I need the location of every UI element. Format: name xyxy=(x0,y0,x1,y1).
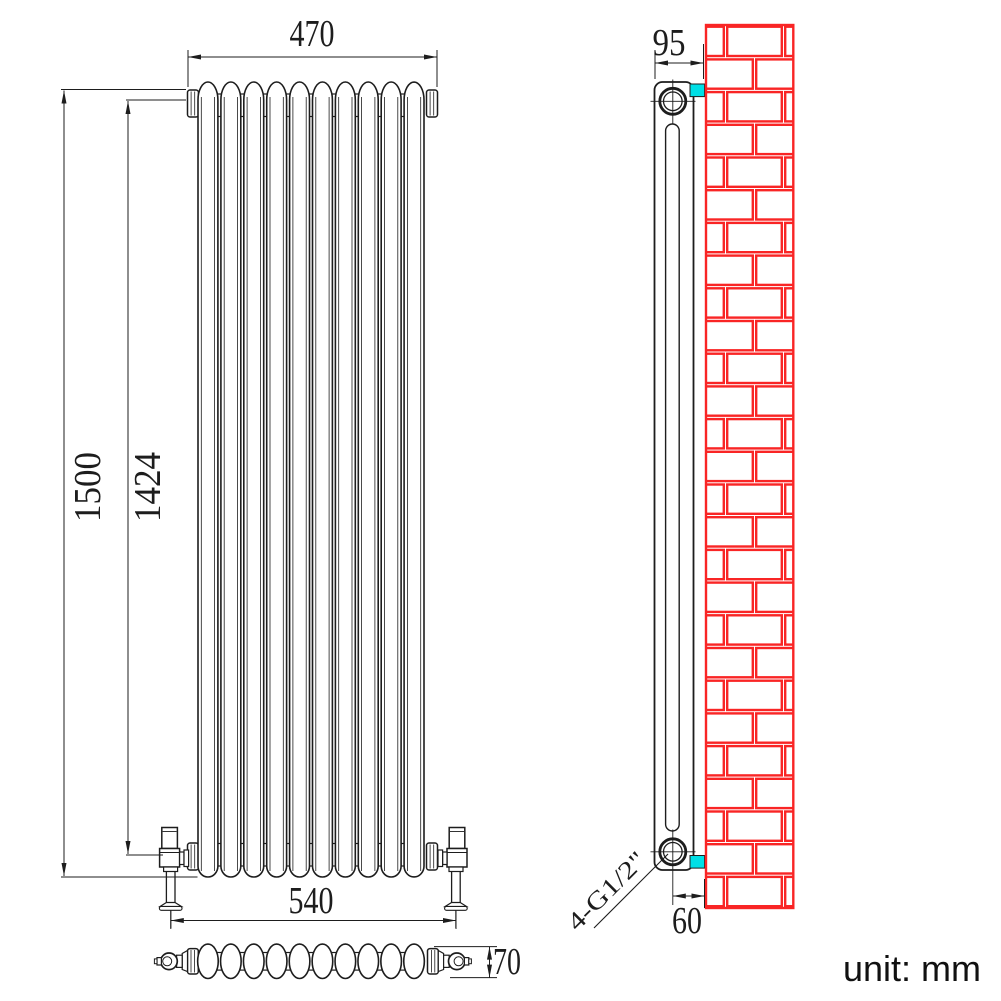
dim-tapping-height-label: 1424 xyxy=(127,452,169,522)
dim-side-width-label: 95 xyxy=(653,22,686,64)
drawing-canvas: 470 1500 1424 540 95 60 70 4-G1/2" unit:… xyxy=(0,0,1001,1001)
dim-overall-height-label: 1500 xyxy=(67,452,109,522)
dim-wall-distance-label: 60 xyxy=(672,900,702,942)
connection-size-label: 4-G1/2" xyxy=(562,846,652,936)
brick-wall xyxy=(669,25,840,908)
radiator-technical-drawing: 470 1500 1424 540 95 60 70 4-G1/2" unit:… xyxy=(0,0,1001,1001)
dim-front-width-label: 470 xyxy=(290,13,335,55)
dim-depth-label: 70 xyxy=(493,941,521,983)
dim-pipe-centres-label: 540 xyxy=(289,880,334,922)
radiator-side-view xyxy=(651,80,705,906)
radiator-top-view xyxy=(154,944,471,978)
unit-label: unit: mm xyxy=(843,948,981,989)
radiator-front-view xyxy=(159,82,467,928)
